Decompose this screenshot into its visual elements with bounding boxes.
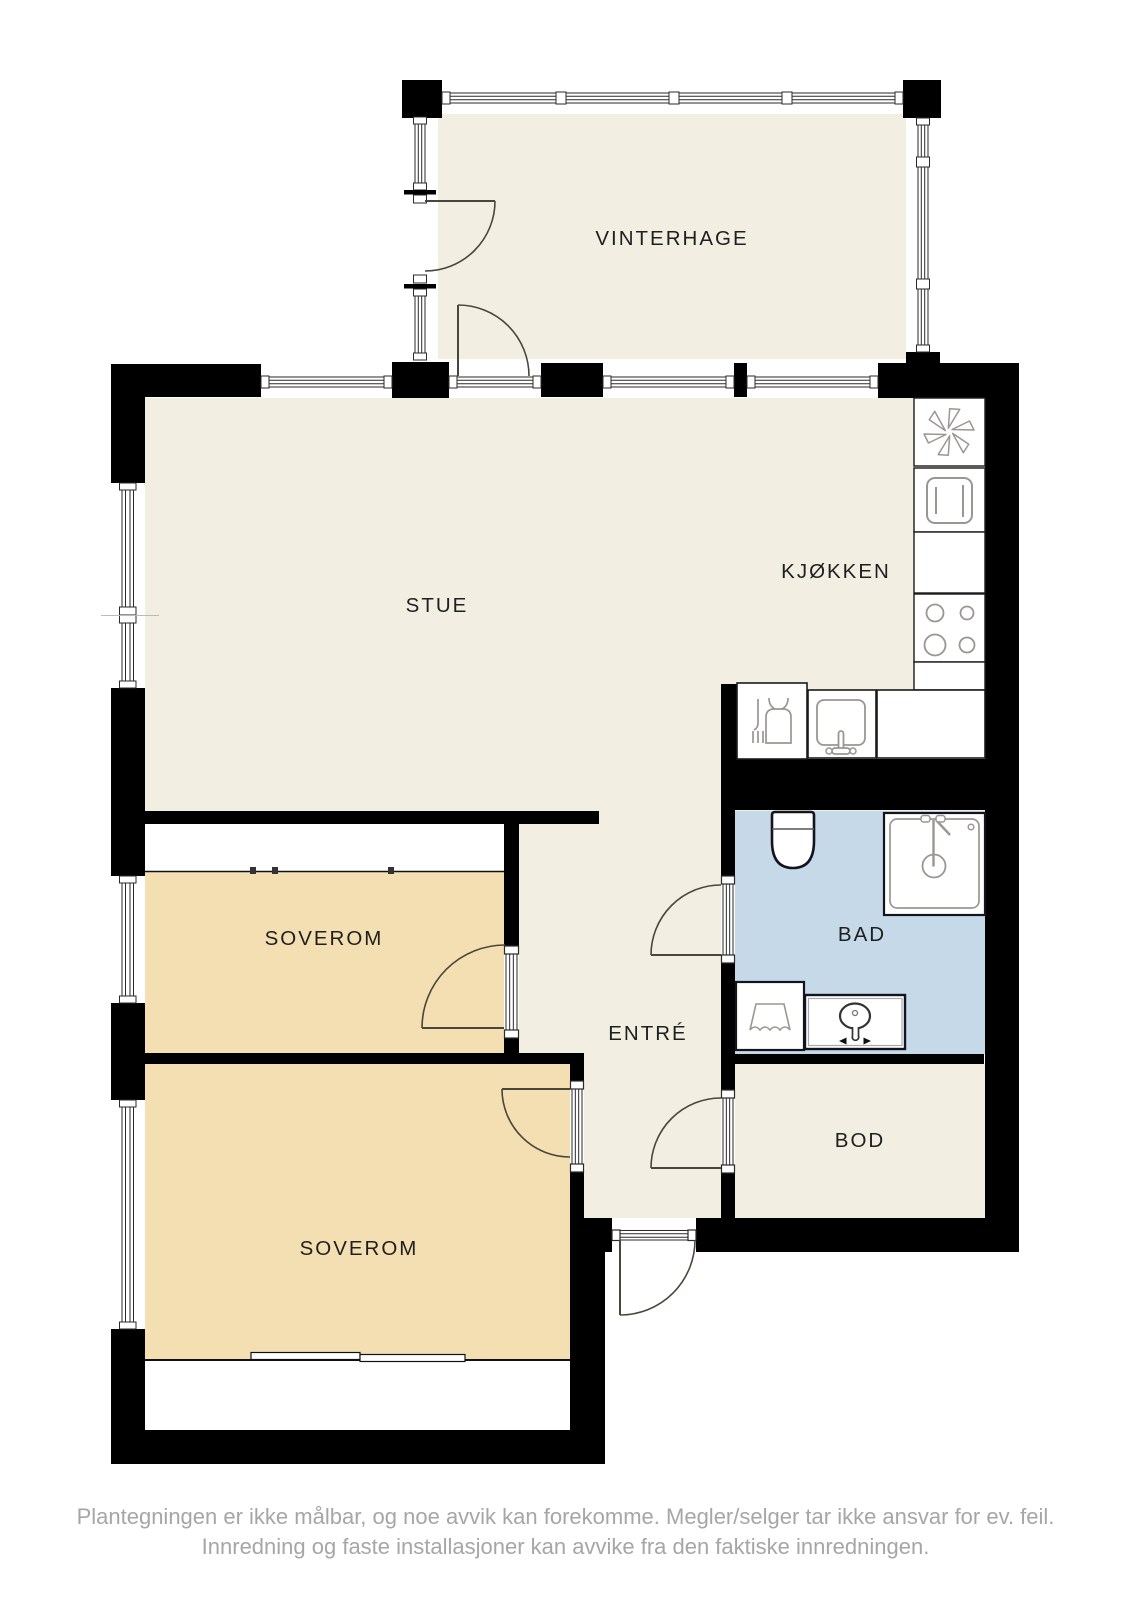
svg-text:SOVEROM: SOVEROM: [265, 927, 384, 950]
svg-text:KJØKKEN: KJØKKEN: [781, 560, 891, 583]
svg-text:Plantegningen er ikke målbar,: Plantegningen er ikke målbar, og noe avv…: [77, 1504, 1055, 1529]
svg-text:VINTERHAGE: VINTERHAGE: [595, 227, 748, 250]
svg-text:STUE: STUE: [406, 594, 469, 617]
svg-text:Innredning og faste installasj: Innredning og faste installasjoner kan a…: [202, 1534, 930, 1559]
svg-text:BOD: BOD: [835, 1129, 885, 1152]
svg-text:BAD: BAD: [838, 923, 886, 946]
svg-text:SOVEROM: SOVEROM: [300, 1237, 419, 1260]
svg-text:ENTRÉ: ENTRÉ: [608, 1022, 687, 1045]
